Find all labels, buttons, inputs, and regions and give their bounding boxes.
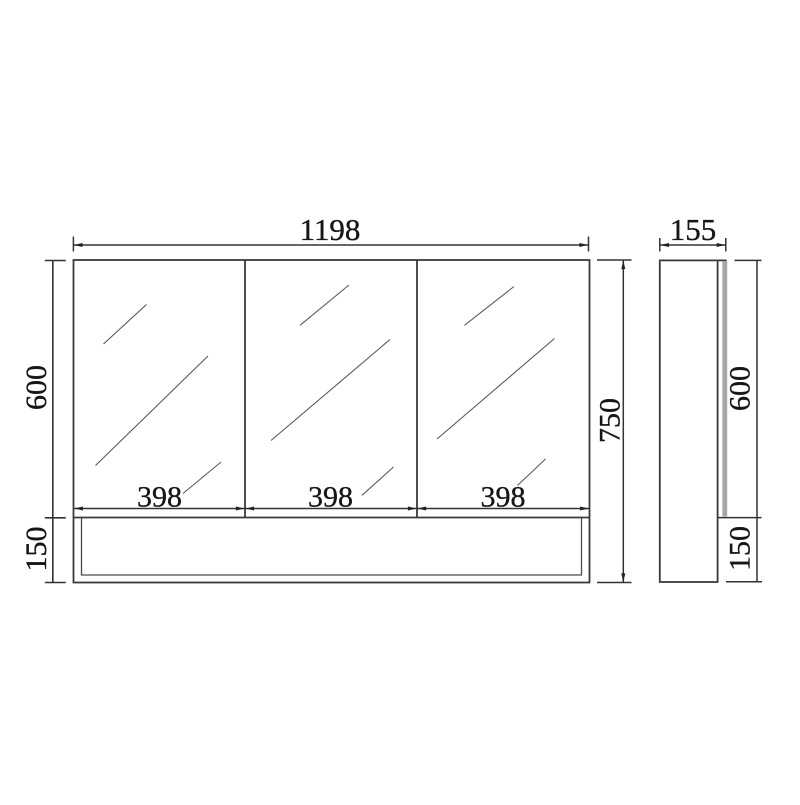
svg-text:398: 398 [137, 481, 182, 514]
svg-text:750: 750 [594, 398, 627, 443]
svg-text:1198: 1198 [300, 212, 361, 247]
svg-text:150: 150 [724, 526, 757, 571]
svg-text:150: 150 [20, 527, 53, 572]
svg-text:600: 600 [20, 365, 53, 410]
svg-text:600: 600 [724, 366, 757, 411]
svg-text:398: 398 [308, 481, 353, 514]
svg-text:398: 398 [481, 481, 526, 514]
svg-text:155: 155 [670, 212, 717, 247]
